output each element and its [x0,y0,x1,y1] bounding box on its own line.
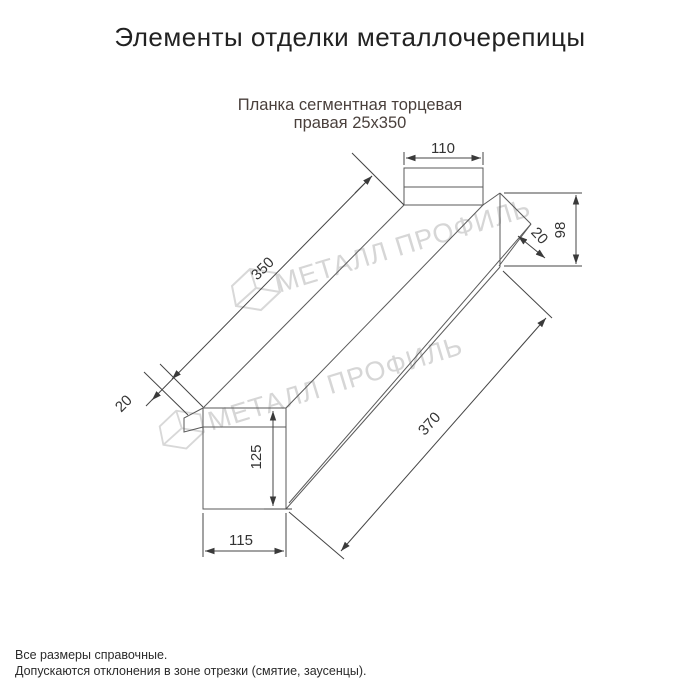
ext-line [144,372,188,415]
dim-20-right: 20 [518,224,551,258]
page: Элементы отделки металлочерепицы Планка … [0,0,700,700]
ext-line [352,153,404,205]
arrow [172,372,179,379]
footer-note-2: Допускаются отклонения в зоне отрезки (с… [15,664,367,680]
arrow [355,176,372,193]
ext-line [289,512,344,559]
arrow [152,393,159,400]
dim-label-20-left: 20 [112,392,136,416]
footer-note-1: Все размеры справочные. [15,648,367,664]
watermark-upper: МЕТАЛЛ ПРОФИЛЬ [232,192,534,310]
dim-label-98: 98 [552,222,569,239]
ext-line [503,271,552,318]
dim-label-115: 115 [229,532,253,549]
watermark-text: МЕТАЛЛ ПРОФИЛЬ [272,192,534,298]
dim-label-125: 125 [248,444,265,469]
dim-370: 370 [289,271,552,559]
dim-125: 125 [248,411,292,509]
dim-110: 110 [404,140,483,165]
dim-label-370: 370 [415,409,444,439]
dim-label-110: 110 [431,140,455,157]
dim-label-20-right: 20 [527,224,551,248]
dim-115: 115 [203,513,286,557]
metall-profil-logo-watermark [160,411,204,449]
technical-drawing: МЕТАЛЛ ПРОФИЛЬ МЕТАЛЛ ПРОФИЛЬ [0,0,700,700]
footer-notes: Все размеры справочные. Допускаются откл… [15,648,367,679]
